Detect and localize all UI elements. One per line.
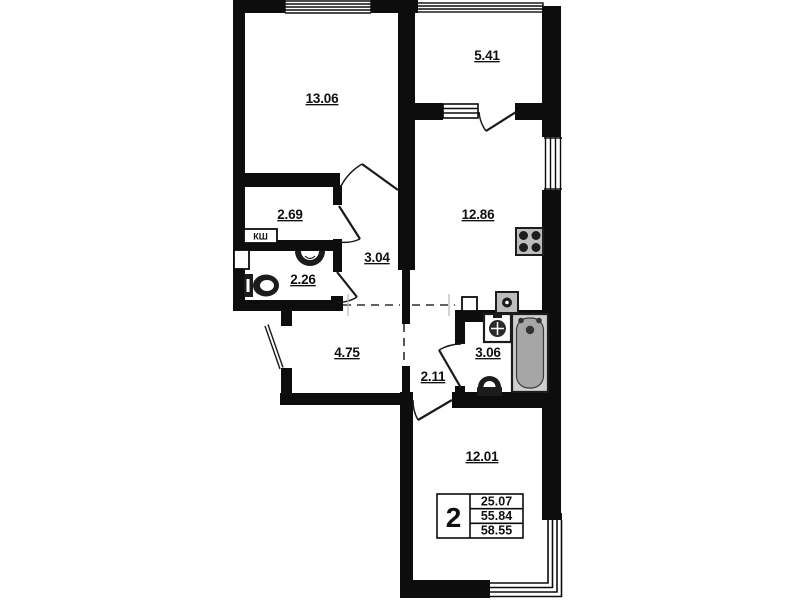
room-area-label-hallway: 4.75 (334, 345, 360, 360)
room-area-label-balcony: 5.41 (474, 48, 500, 63)
wc-washbasin-icon (295, 251, 325, 266)
duct-label: КШ (253, 232, 268, 242)
room-area-label-bathroom: 3.06 (475, 345, 501, 360)
storage-door-icon (339, 206, 360, 242)
kitchen-sink-icon (496, 292, 518, 313)
wall-central (398, 13, 415, 270)
wc-toilet-icon (244, 274, 279, 297)
room-area-label-storage: 2.69 (277, 207, 302, 222)
wall-bathroom-west-upper (455, 310, 465, 344)
bathroom-toilet-icon (477, 376, 502, 396)
wall-west-stub-upper (281, 311, 292, 326)
stamp-rooms-count: 2 (446, 502, 462, 533)
opening-dashes (343, 294, 455, 366)
wall-bedroom-bottom (245, 173, 340, 187)
floor-plan-page: КШ 13.06 5.41 12.86 2.69 3.04 2.26 4.75 … (0, 0, 799, 600)
wall-living-left (400, 392, 413, 598)
kitchen-window-icon (544, 137, 562, 190)
wall-balcony-left-seg (415, 103, 443, 120)
bedroom-window-icon (285, 0, 371, 13)
room-area-label-hall: 3.04 (364, 250, 390, 265)
wall-top-left (233, 0, 285, 13)
stamp-total-area: 58.55 (481, 524, 512, 538)
living-room-door-icon (413, 400, 452, 420)
stamp-apartment-area: 55.84 (481, 509, 512, 523)
wall-balcony-right-seg (515, 103, 542, 120)
bathtub-icon (512, 314, 548, 392)
room-area-label-living-room: 12.01 (466, 449, 499, 464)
wall-central-stub-upper (402, 270, 410, 324)
wall-bottom (400, 580, 490, 598)
wall-living-top (452, 392, 560, 408)
room-area-label-wc: 2.26 (290, 272, 316, 287)
wall-storage-right-top (333, 185, 342, 205)
bathroom-sink-icon (484, 313, 511, 342)
wall-wc-pivot-block (331, 296, 343, 311)
entrance-door-icon (265, 325, 283, 370)
vent-shaft (462, 297, 477, 311)
wall-top-mid (371, 0, 418, 13)
wall-corner-window-cap (546, 513, 562, 520)
wall-wc-bottom (233, 300, 343, 311)
room-area-label-corridor: 2.11 (421, 369, 446, 384)
wall-right-column (542, 6, 561, 137)
floor-plan: КШ 13.06 5.41 12.86 2.69 3.04 2.26 4.75 … (0, 0, 799, 600)
stamp-living-area: 25.07 (481, 495, 512, 509)
bedroom-door-icon (341, 164, 398, 190)
apartment-stamp: 2 25.07 55.84 58.55 (437, 494, 523, 538)
duct-box: КШ (244, 229, 277, 243)
balcony-glazing-icon (417, 3, 543, 12)
room-area-label-kitchen: 12.86 (462, 207, 495, 222)
stove-icon (516, 228, 543, 255)
wc-niche (234, 250, 249, 269)
wall-central-stub-lower (402, 366, 410, 396)
wall-hallway-bottom (280, 393, 413, 405)
room-area-label-bedroom: 13.06 (306, 91, 339, 106)
balcony-block-window-icon (443, 104, 478, 118)
balcony-door-icon (479, 112, 516, 131)
